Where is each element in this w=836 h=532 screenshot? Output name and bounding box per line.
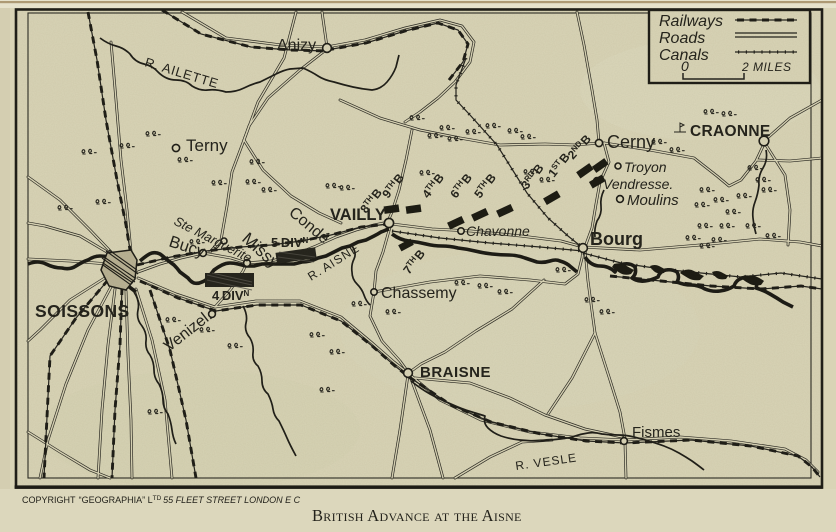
svg-text:0: 0 [681, 58, 689, 74]
svg-text:2 MILES: 2 MILES [741, 60, 792, 74]
svg-text:Fismes: Fismes [632, 424, 680, 441]
svg-text:SOISSONS: SOISSONS [35, 301, 130, 321]
svg-text:Vendresse.: Vendresse. [603, 176, 673, 192]
svg-text:Roads: Roads [659, 30, 705, 47]
svg-text:Railways: Railways [659, 13, 723, 30]
svg-text:CRAONNE: CRAONNE [690, 123, 770, 140]
svg-text:Bourg: Bourg [590, 229, 643, 249]
svg-text:Chassemy: Chassemy [381, 285, 457, 302]
svg-text:Troyon: Troyon [624, 159, 667, 175]
svg-text:Chavonne: Chavonne [466, 223, 530, 239]
svg-text:Terny: Terny [186, 136, 228, 155]
svg-text:BRAISNE: BRAISNE [420, 364, 491, 381]
svg-text:Cerny: Cerny [607, 132, 655, 152]
svg-text:Anizy: Anizy [277, 37, 316, 54]
svg-text:British Advance at the Aisne: British Advance at the Aisne [312, 506, 522, 525]
svg-text:Moulins: Moulins [627, 192, 679, 209]
svg-text:COPYRIGHT “GEOGRAPHIA” LTD 55: COPYRIGHT “GEOGRAPHIA” LTD 55 FLEET STRE… [22, 495, 301, 505]
